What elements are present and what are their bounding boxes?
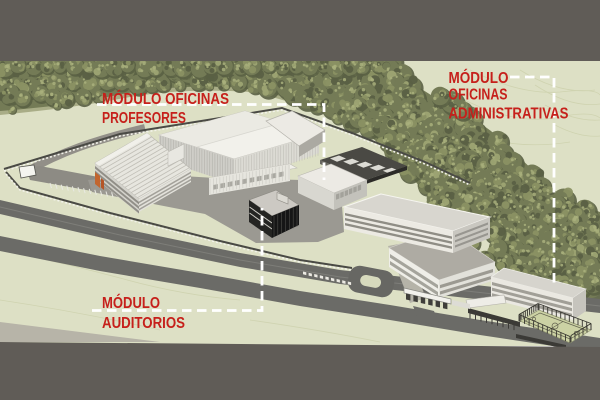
svg-text:PROFESORES: PROFESORES	[102, 110, 186, 127]
svg-text:ADMINISTRATIVAS: ADMINISTRATIVAS	[449, 106, 569, 123]
svg-text:AUDITORIOS: AUDITORIOS	[102, 315, 185, 332]
svg-text:MÓDULO: MÓDULO	[102, 294, 160, 312]
svg-text:OFICINAS: OFICINAS	[449, 87, 508, 104]
svg-text:MÓDULO OFICINAS: MÓDULO OFICINAS	[102, 90, 229, 108]
svg-text:MÓDULO: MÓDULO	[449, 69, 509, 87]
